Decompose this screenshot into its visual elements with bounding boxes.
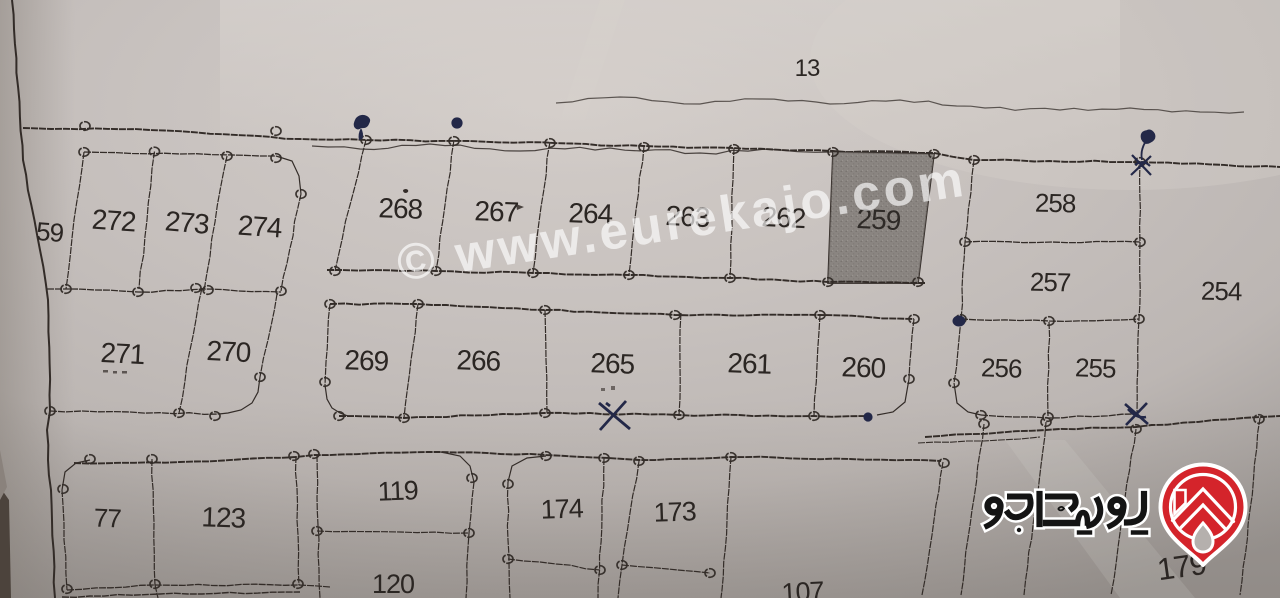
svg-text:272: 272: [91, 204, 137, 238]
svg-text:273: 273: [164, 205, 211, 240]
svg-text:254: 254: [1201, 276, 1242, 307]
svg-text:260: 260: [841, 351, 886, 384]
svg-text:120: 120: [372, 569, 414, 598]
svg-text:268: 268: [378, 192, 423, 225]
svg-text:261: 261: [727, 347, 772, 380]
svg-text:174: 174: [540, 493, 584, 524]
svg-text:269: 269: [344, 344, 389, 377]
svg-text:258: 258: [1035, 188, 1076, 219]
svg-text:77: 77: [93, 503, 121, 534]
svg-text:270: 270: [206, 335, 252, 368]
svg-text:123: 123: [201, 501, 246, 534]
svg-text:173: 173: [653, 496, 696, 527]
svg-text:107: 107: [781, 576, 825, 598]
svg-text:271: 271: [100, 337, 146, 370]
svg-text:255: 255: [1075, 352, 1117, 383]
svg-text:59: 59: [35, 216, 64, 248]
svg-text:119: 119: [377, 475, 418, 506]
svg-text:257: 257: [1030, 267, 1071, 298]
svg-text:13: 13: [795, 55, 820, 82]
svg-text:274: 274: [237, 210, 283, 244]
svg-text:266: 266: [456, 344, 501, 377]
svg-text:265: 265: [590, 347, 635, 380]
svg-text:256: 256: [981, 352, 1023, 383]
